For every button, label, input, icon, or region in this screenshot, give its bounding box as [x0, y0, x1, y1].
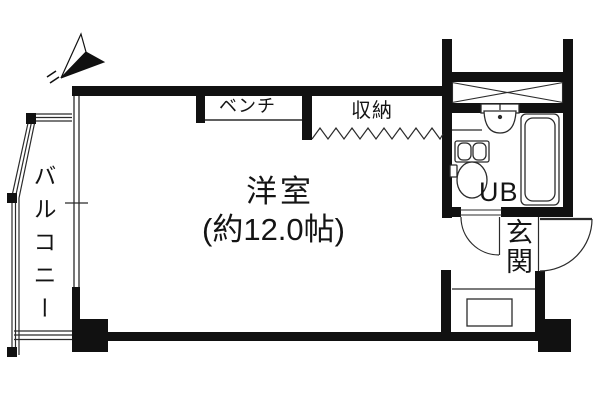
wall-right-lower — [441, 270, 451, 334]
wall-entrance-right — [535, 271, 545, 333]
north-arrow-icon — [47, 34, 104, 83]
wall-shaft-top — [442, 72, 573, 82]
bathtub-icon — [521, 114, 559, 205]
floor-plan: ベンチ 収納 洋室 (約12.0帖) UB 玄関 バルコニー — [0, 0, 600, 400]
wall-right-upper — [442, 39, 452, 218]
ub-door-swing-icon — [460, 210, 502, 255]
shaft-cross-icon — [452, 82, 563, 103]
wall-ub-bottom-right — [501, 207, 573, 217]
entrance-step-and-shoebox — [452, 289, 535, 326]
entrance-label: 玄関 — [503, 218, 530, 276]
wall-left-lower — [72, 287, 80, 320]
room-label: 洋室 — [246, 176, 314, 207]
wall-top — [72, 86, 452, 96]
wall-ub-bottom-left — [442, 207, 461, 217]
shoebox — [467, 299, 512, 326]
wall-bench-stub-left — [196, 96, 205, 123]
entrance-door-swing-icon — [539, 217, 593, 271]
balcony-label: バルコニー — [31, 164, 54, 329]
window-balcony — [65, 96, 88, 287]
wall-ub-right — [563, 39, 573, 215]
bench-label: ベンチ — [219, 97, 276, 115]
room-size-label: (約12.0帖) — [202, 214, 345, 245]
wall-bench-stub-right — [302, 96, 312, 140]
unit-bath-label: UB — [479, 179, 519, 206]
pillar-bottom-left — [72, 319, 108, 352]
open-closet-zigzag-icon — [312, 128, 443, 139]
storage-label: 収納 — [351, 101, 393, 121]
wall-bottom — [107, 332, 538, 341]
